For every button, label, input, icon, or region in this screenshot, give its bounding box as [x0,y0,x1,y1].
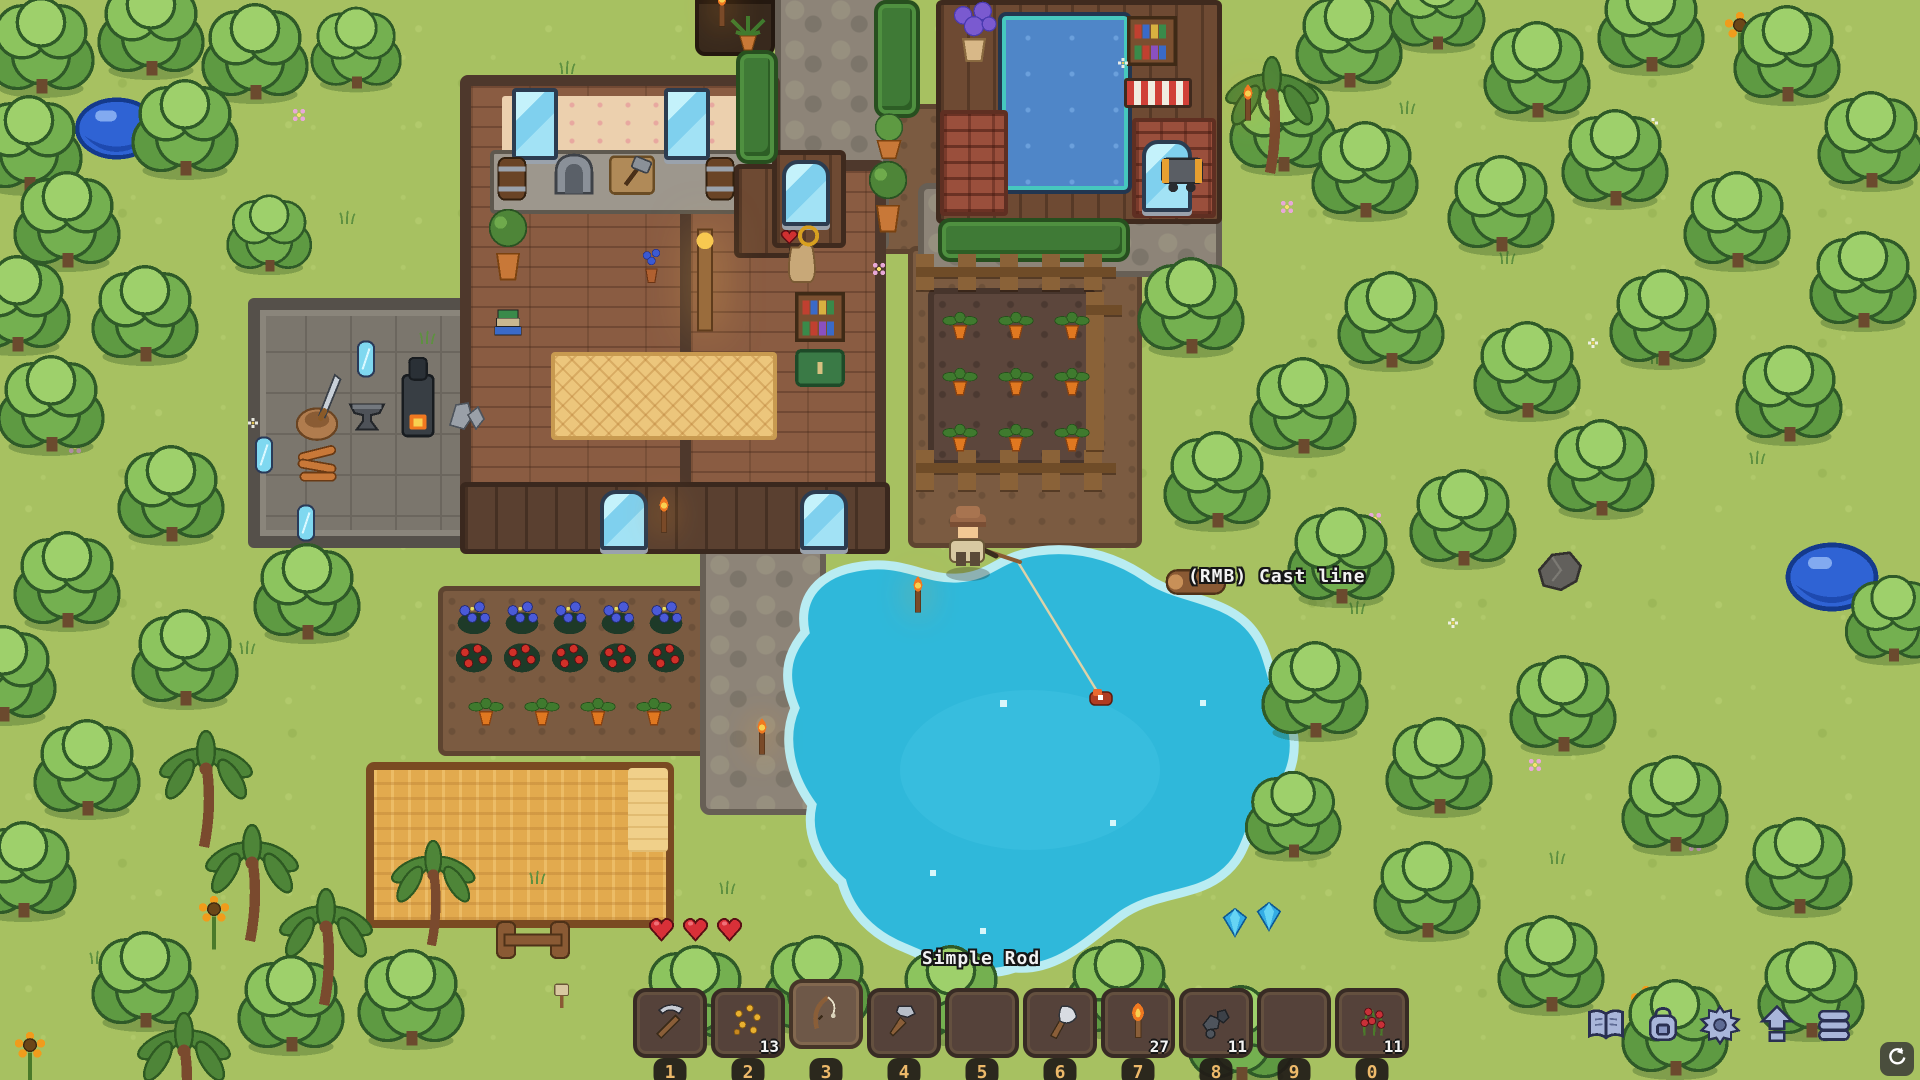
tree-sprite [222,192,316,275]
tree-sprite [1380,714,1498,818]
selected-item-label: Simple Rod [922,948,1040,969]
barrel-icon [1812,1033,1856,1052]
tree-sprite [1556,106,1674,210]
palm-sprite [158,730,254,852]
hotbar-slot-2[interactable]: 132 [711,988,785,1058]
tree-sprite [1478,18,1596,122]
torchpost-sprite [1232,80,1264,126]
tree-sprite [126,606,244,710]
pickaxe-icon [648,999,692,1047]
tree-sprite [0,622,62,726]
hotbar-slot-1[interactable]: 1 [633,988,707,1058]
tree-sprite [352,946,470,1050]
sync-icon [1885,1045,1909,1073]
garden-soil [928,288,1096,466]
tuft-sprite [1346,596,1370,618]
slot-key-badge: 4 [888,1058,921,1080]
tree-sprite [8,168,126,272]
tree-sprite [126,76,244,180]
hotbar-slot-5[interactable]: 5 [945,988,1019,1058]
pinkflower-sprite [1414,286,1436,308]
house-carpet [551,352,777,440]
hotbar-slot-3[interactable]: 3 [789,979,863,1049]
tuft-sprite [1396,96,1420,118]
tree-sprite [8,528,126,632]
tree-sprite [1468,318,1586,422]
tree-sprite [112,442,230,546]
garden-fence-side [1086,292,1122,450]
gear-icon [1698,1033,1742,1052]
tuft-sprite [336,206,360,228]
brick-wall [940,110,1008,216]
hotbar: 113234562771189110 [633,988,1409,1058]
tree-sprite [0,92,88,196]
tree-sprite [0,818,82,922]
slot-key-badge: 0 [1356,1058,1389,1080]
tree-sprite [1158,428,1276,532]
whiteflower-sprite [1586,336,1600,350]
whiteflower-sprite [1446,616,1460,630]
tree-sprite [1384,0,1490,54]
tree-sprite [1332,268,1450,372]
slot-key-badge: 7 [1122,1058,1155,1080]
bobber [1090,689,1112,705]
hotbar-slot-8[interactable]: 118 [1179,988,1253,1058]
gem-sprite [1220,904,1250,941]
tree-sprite [1740,814,1858,918]
tree-sprite [1282,504,1400,608]
item-count: 27 [1150,1037,1169,1056]
heart-sprite [680,914,711,943]
axe-icon [1038,999,1082,1047]
tree-sprite [1542,416,1660,520]
hotbar-slot-7[interactable]: 277 [1101,988,1175,1058]
gem-sprite [1254,898,1284,935]
tree-sprite [1240,768,1346,862]
stone-patio [700,545,826,815]
tree-sprite [1592,0,1710,76]
tree-sprite [1442,152,1560,256]
tree-sprite [1244,354,1362,458]
water-pool [1002,16,1128,190]
slot-key-badge: 3 [810,1058,843,1080]
hotbar-slot-9[interactable]: 9 [1257,988,1331,1058]
backpack-icon [1641,1033,1685,1052]
tree-sprite [1306,118,1424,222]
tree-sprite [1812,88,1920,192]
tree-sprite [1730,342,1848,446]
tree-sprite [1504,652,1622,756]
rockbig-sprite [1534,544,1588,592]
torchpost-sprite [902,572,934,618]
wing-window-arch [782,160,830,226]
tuft-sprite [1546,846,1570,868]
slime-sprite [1780,532,1884,614]
pinkflower-sprite [1364,508,1386,530]
pinkflower-sprite [288,104,310,126]
house-window-arch [600,490,648,550]
hedge [874,0,920,118]
slot-key-badge: 1 [654,1058,687,1080]
hotbar-slot-6[interactable]: 6 [1023,988,1097,1058]
journal-button[interactable] [1584,1002,1628,1048]
tree-sprite [0,252,76,356]
fishing-rod [984,550,1020,562]
tree-sprite [1678,168,1796,272]
hotbar-slot-4[interactable]: 4 [867,988,941,1058]
house-window [664,88,710,160]
slot-key-badge: 9 [1278,1058,1311,1080]
sunflower-sprite [1718,2,1762,74]
tree-sprite [0,0,100,98]
tree-sprite [1256,638,1374,742]
tree-sprite [1492,912,1610,1016]
tree-sprite [1224,72,1342,176]
up-arrows-icon [1755,1033,1799,1052]
tree-sprite [1404,466,1522,570]
tree-sprite [92,0,210,80]
garden-fence [916,254,1116,290]
sign-sprite [546,980,576,1016]
sunflower-sprite [192,886,236,958]
tuft-sprite [716,876,740,898]
fishing-rod-icon [804,990,848,1038]
item-count: 13 [760,1037,779,1056]
menu-bar [1584,1002,1856,1048]
pinkflower-sprite [1276,196,1298,218]
bed [1124,78,1192,108]
tree-sprite [248,540,366,644]
tree-sprite [1728,2,1846,106]
tree-sprite [196,0,314,104]
tree-sprite [232,952,350,1056]
tree-sprite [1368,838,1486,942]
harvested-patch [628,768,668,852]
north-window-arch [1142,140,1192,212]
slot-key-badge: 2 [732,1058,765,1080]
flowerbed-dirt [438,586,716,756]
storage-button[interactable] [1812,1002,1856,1048]
tuft-sprite [1646,346,1670,368]
tuft-sprite [236,636,260,658]
tree-sprite [1840,572,1920,666]
slot-key-badge: 5 [966,1058,999,1080]
tree-sprite [0,352,110,456]
tree-sprite [1804,228,1920,332]
item-count: 11 [1384,1037,1403,1056]
pinkflower-sprite [1684,834,1706,856]
tree-sprite [86,262,204,366]
tuft-sprite [1746,446,1770,468]
tuft-sprite [166,296,190,318]
tree-sprite [28,716,146,820]
autosave-indicator [1880,1042,1914,1076]
tuft-sprite [1496,246,1520,268]
fishing-line [1018,562,1100,696]
palm-sprite [1224,56,1320,178]
heart-sprite [714,914,745,943]
slot-key-badge: 8 [1200,1058,1233,1080]
tuft-sprite [86,946,110,968]
whiteflower-sprite [16,36,30,50]
sunflower-sprite [8,1022,52,1080]
pinkflower-sprite [1524,754,1546,776]
hotbar-slot-0[interactable]: 110 [1335,988,1409,1058]
pinkflower-sprite [64,436,86,458]
house-window-arch [800,490,848,550]
palm-sprite [136,1012,232,1080]
tree-sprite [86,928,204,1032]
tree-sprite [306,4,406,92]
cellar-entrance [695,0,775,56]
settings-button[interactable] [1698,1002,1742,1048]
upgrades-button[interactable] [1755,1002,1799,1048]
whiteflower-sprite [1646,116,1660,130]
inventory-button[interactable] [1641,1002,1685,1048]
garden-fence [916,450,1116,490]
house-window [512,88,558,160]
action-hint: (RMB) Cast line [1188,566,1366,587]
slime-sprite [70,88,164,162]
tree-sprite [1290,0,1408,92]
tree-sprite [1616,752,1734,856]
hedge [736,50,778,164]
game-viewport[interactable]: (RMB) Cast line Simple Rod 1132345627711… [0,0,1920,1080]
hammer-icon [882,999,926,1047]
tree-sprite [1604,266,1722,370]
slot-key-badge: 6 [1044,1058,1077,1080]
palm-sprite [278,888,374,1010]
book-icon [1584,1033,1628,1052]
item-count: 11 [1228,1037,1247,1056]
palm-sprite [204,824,300,946]
